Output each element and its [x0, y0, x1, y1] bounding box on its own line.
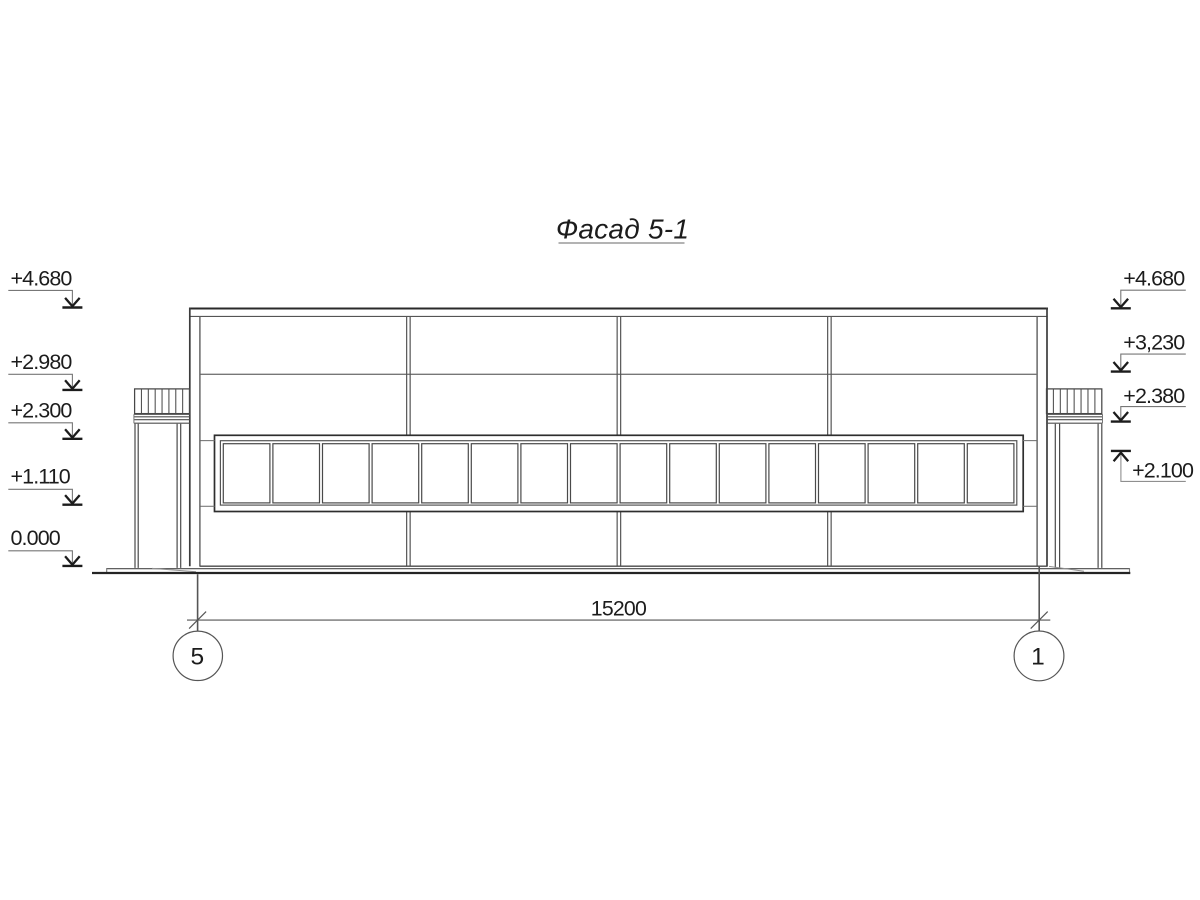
svg-text:0.000: 0.000: [11, 526, 61, 550]
svg-text:+2.380: +2.380: [1123, 384, 1185, 408]
svg-text:+2.100: +2.100: [1132, 458, 1194, 482]
svg-text:+4.680: +4.680: [11, 267, 73, 291]
svg-text:+3,230: +3,230: [1123, 330, 1185, 354]
svg-text:+2.300: +2.300: [11, 399, 73, 423]
svg-text:15200: 15200: [591, 597, 647, 621]
svg-text:Фасад 5-1: Фасад 5-1: [556, 214, 689, 245]
svg-text:+1.110: +1.110: [11, 465, 71, 489]
svg-text:+4.680: +4.680: [1123, 267, 1185, 291]
svg-text:+2.980: +2.980: [11, 350, 73, 374]
svg-text:1: 1: [1031, 644, 1045, 671]
svg-text:5: 5: [190, 644, 204, 671]
